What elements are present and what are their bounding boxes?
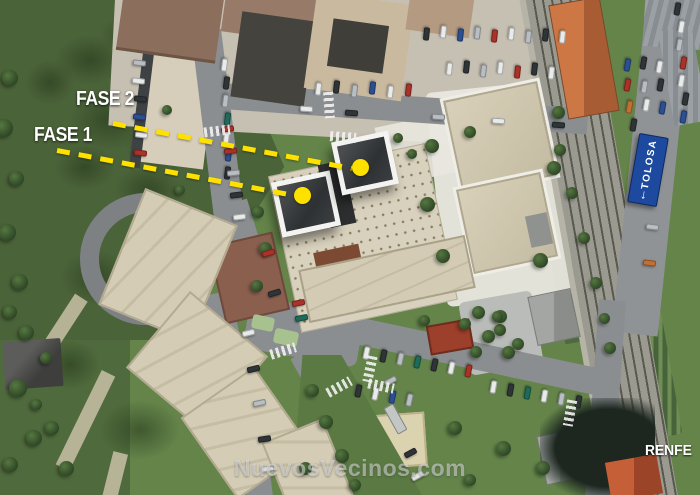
parked-car	[506, 383, 514, 397]
tree	[419, 315, 430, 326]
parked-car	[405, 393, 414, 407]
tree	[9, 171, 24, 186]
parked-car	[489, 380, 497, 394]
crosswalk	[323, 92, 335, 119]
tree	[393, 133, 403, 143]
tree	[599, 313, 610, 324]
parked-car	[625, 100, 633, 114]
tree	[45, 421, 59, 435]
tree	[502, 346, 515, 359]
tree	[470, 346, 482, 358]
tree	[604, 342, 616, 354]
tree	[306, 384, 319, 397]
tree	[472, 306, 485, 319]
tree	[496, 441, 511, 456]
tree	[533, 253, 548, 268]
tree	[566, 187, 578, 199]
parked-car	[300, 106, 313, 113]
parked-car	[379, 349, 388, 363]
tree	[319, 415, 333, 429]
town-courtyard-block	[230, 11, 315, 106]
tree	[547, 161, 561, 175]
tree	[448, 421, 462, 435]
parked-car	[345, 110, 358, 117]
parked-car	[464, 364, 473, 378]
tolosa-sign-text: TOLOSA	[639, 139, 659, 191]
grass-patch	[25, 60, 75, 105]
parked-car	[432, 114, 445, 121]
tree	[251, 280, 263, 292]
aerial-development-render: FASE 2 FASE 1 TOLOSA ↓ RENFE NuevosVecin…	[0, 0, 700, 495]
tree	[459, 318, 471, 330]
tree	[407, 149, 417, 159]
parked-car	[447, 361, 456, 375]
tree	[31, 399, 42, 410]
tree	[9, 379, 27, 397]
grass-patch	[100, 400, 180, 460]
parked-car	[552, 122, 565, 129]
tree	[464, 126, 476, 138]
tree	[3, 305, 17, 319]
crosswalk	[330, 131, 357, 143]
parked-car	[623, 78, 631, 92]
parked-car	[623, 58, 631, 72]
fase1-dot	[294, 187, 311, 204]
tree	[162, 105, 172, 115]
tree	[175, 185, 185, 195]
tree	[590, 277, 602, 289]
watermark: NuevosVecinos.com	[0, 455, 700, 482]
tree	[26, 430, 42, 446]
tree	[420, 197, 435, 212]
tree	[425, 139, 439, 153]
tree	[12, 274, 28, 290]
tree	[578, 232, 590, 244]
tree	[552, 106, 565, 119]
tree	[494, 324, 506, 336]
parked-car	[413, 355, 422, 369]
tree	[0, 224, 16, 241]
tree	[40, 352, 52, 364]
tree	[482, 330, 495, 343]
arrow-down-icon: ↓	[639, 189, 647, 202]
tree	[554, 144, 566, 156]
parked-car	[492, 118, 505, 125]
fase2-label: FASE 2	[76, 88, 134, 111]
fase2-dot	[352, 159, 369, 176]
town-inner-court	[327, 18, 389, 73]
parked-car	[430, 358, 439, 372]
fase1-label: FASE 1	[34, 124, 92, 147]
tree	[2, 70, 18, 86]
tree	[19, 325, 34, 340]
tree	[436, 249, 450, 263]
tree	[252, 206, 264, 218]
tree	[492, 311, 503, 322]
parked-car	[396, 352, 405, 366]
parked-car	[523, 386, 531, 400]
